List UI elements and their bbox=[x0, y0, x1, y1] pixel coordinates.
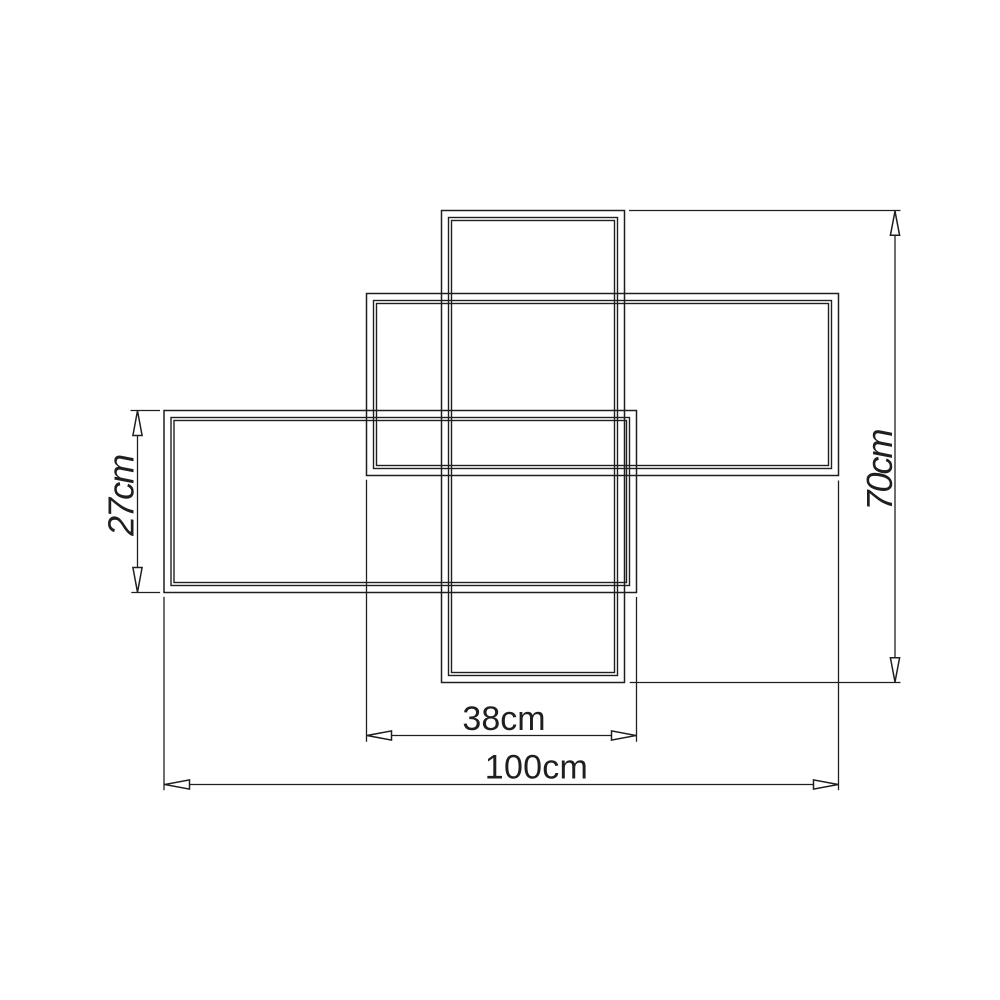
svg-text:38cm: 38cm bbox=[462, 700, 545, 738]
svg-text:100cm: 100cm bbox=[485, 748, 588, 786]
svg-text:70cm: 70cm bbox=[859, 429, 900, 511]
svg-text:27cm: 27cm bbox=[101, 454, 142, 537]
